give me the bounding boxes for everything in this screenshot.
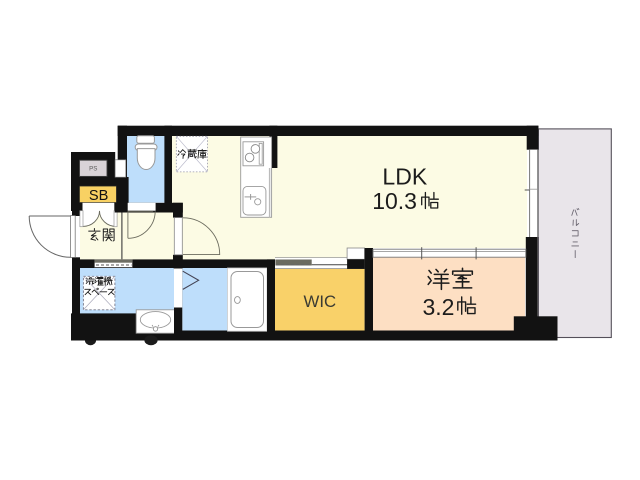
svg-text:10.3: 10.3 <box>372 188 417 214</box>
svg-text:WIC: WIC <box>303 292 336 311</box>
svg-text:LDK: LDK <box>382 164 427 190</box>
svg-text:SB: SB <box>89 188 108 204</box>
svg-text:PS: PS <box>89 166 97 173</box>
svg-text:3.2: 3.2 <box>423 294 455 320</box>
